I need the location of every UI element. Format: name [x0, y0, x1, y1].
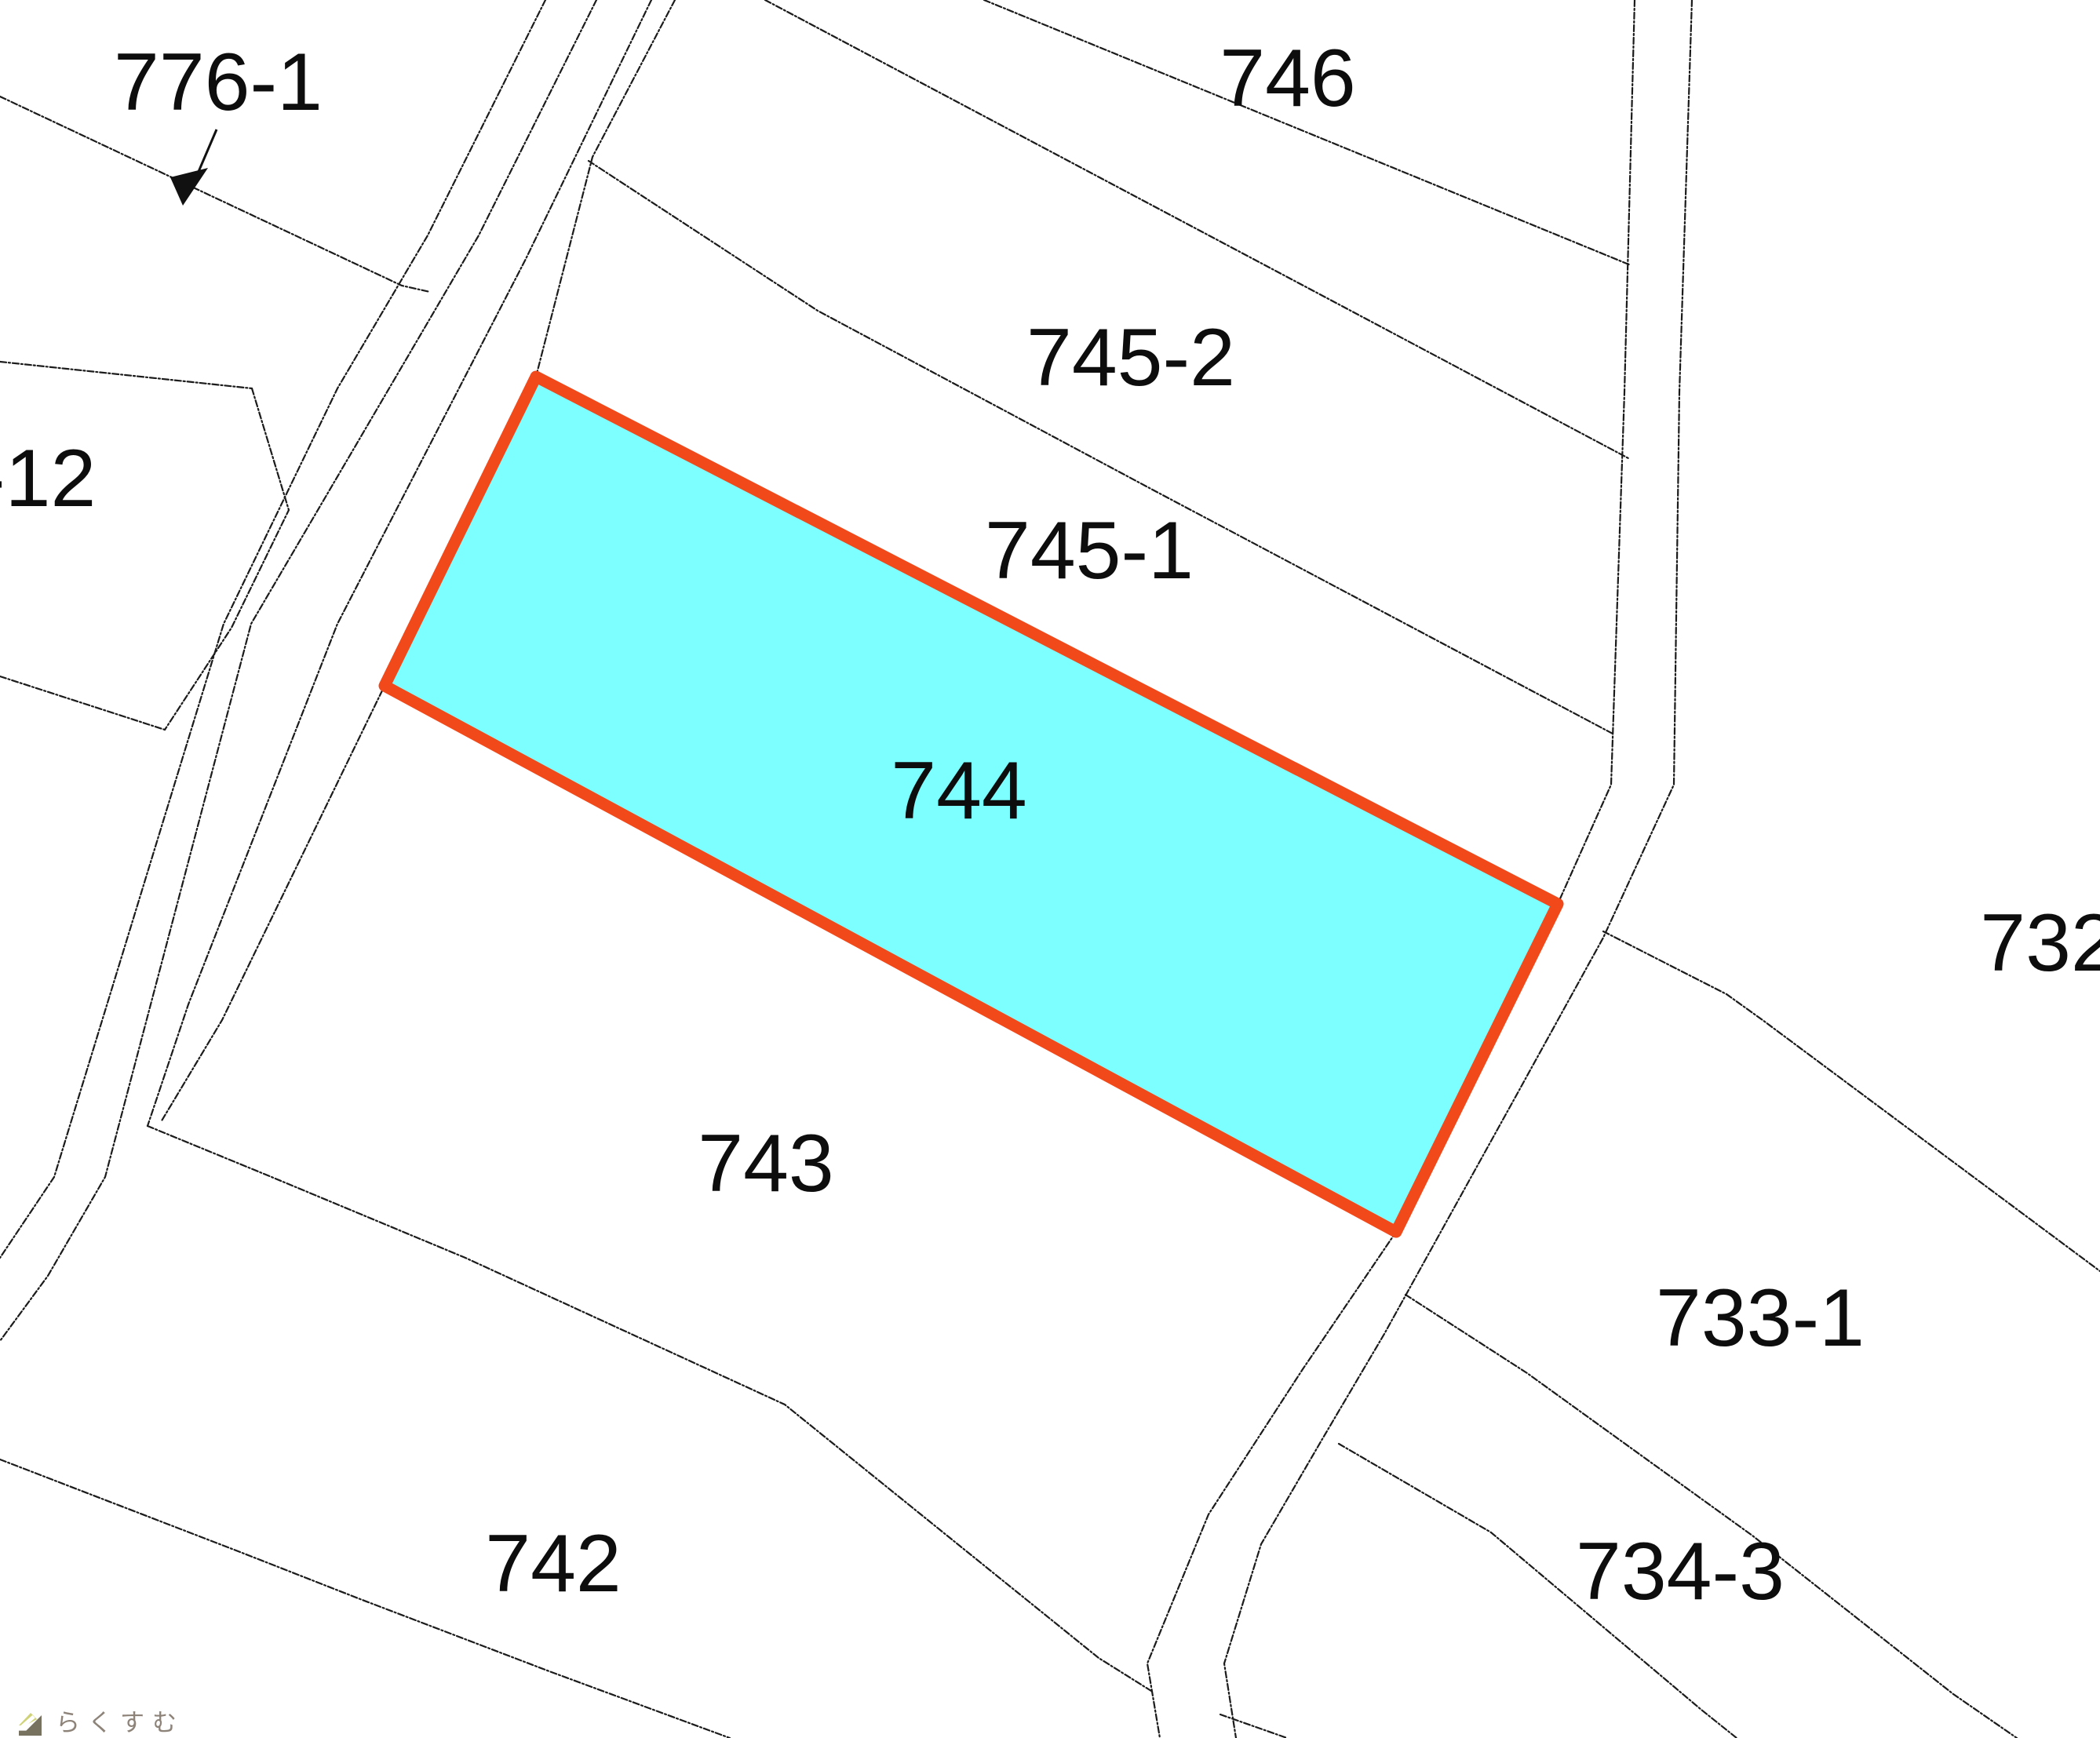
cadastral-map-stage: 776-1746745-2745-1744-12743742732733-173…	[0, 0, 2100, 1738]
cadastral-map: 776-1746745-2745-1744-12743742732733-173…	[0, 0, 2100, 1738]
boundary-743-742-line	[148, 1126, 1151, 1691]
parcel-label-743: 743	[698, 1118, 834, 1209]
parcel-label-746: 746	[1220, 33, 1356, 124]
parcel-12-south-line	[0, 676, 165, 730]
rakusumu-watermark-text: らくすむ	[56, 1709, 184, 1736]
parcel-12-north-line	[0, 362, 252, 388]
parcel-label-742: 742	[485, 1518, 622, 1609]
label-776-1-pointer-arrow	[170, 129, 217, 206]
rakusumu-logo-icon	[19, 1713, 42, 1736]
boundary-bottom-sliver-line	[1220, 1714, 1287, 1738]
parcel-label-776-1: 776-1	[114, 37, 323, 128]
parcel-label-733-1: 733-1	[1656, 1273, 1865, 1364]
parcel-label-745-1: 745-1	[985, 505, 1194, 596]
parcel-label-732: 732	[1980, 898, 2100, 989]
parcel-label-745-2: 745-2	[1026, 312, 1235, 403]
rakusumu-watermark: らくすむ	[19, 1709, 184, 1736]
parcel-label-734-3: 734-3	[1576, 1526, 1785, 1617]
parcel-label-744: 744	[891, 745, 1027, 836]
parcel-label-minus12: -12	[0, 433, 96, 524]
parcel-label-734-4: 734-4	[1540, 1729, 1748, 1738]
parcel-12-east-line	[165, 388, 289, 730]
